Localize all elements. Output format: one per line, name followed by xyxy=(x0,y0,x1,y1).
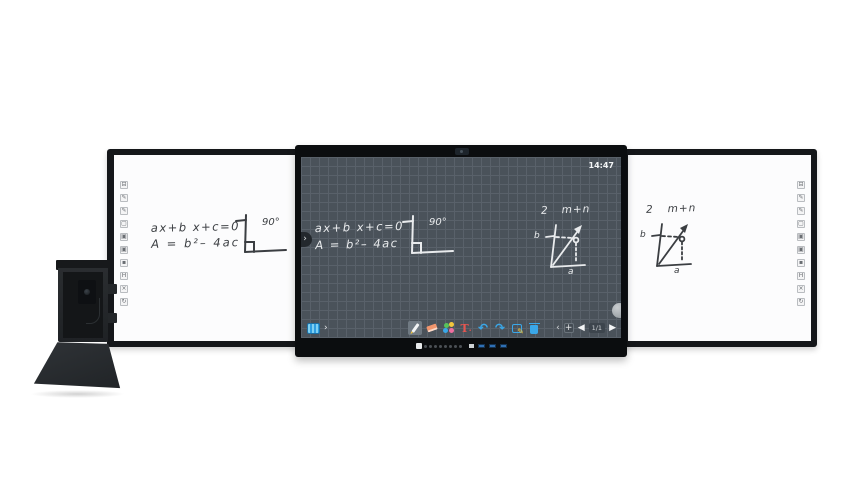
panel-button[interactable] xyxy=(434,345,437,348)
front-io-panel xyxy=(416,342,524,350)
eraser-icon xyxy=(426,323,437,332)
slide-out-panel-handle[interactable]: › xyxy=(301,232,312,247)
panel-button[interactable] xyxy=(444,345,447,348)
select-tool-button[interactable] xyxy=(510,321,524,335)
right-wing-figure-title: 2m+n xyxy=(646,202,697,216)
pen-thick-icon[interactable]: ✎ xyxy=(797,207,805,215)
pen-thick-icon[interactable]: ✎ xyxy=(120,207,128,215)
collapse-chevron-icon[interactable]: ‹ xyxy=(556,322,560,334)
equation-line-1: ax+b x+c=0 xyxy=(151,218,240,236)
tray-shadow xyxy=(30,390,125,398)
cabinet-opening xyxy=(63,272,103,338)
screen-handwriting: ax+b x+c=0 A = b²– 4ac xyxy=(315,218,405,254)
annotation-toolbar: T. ↶ ↷ xyxy=(408,321,541,335)
next-page-button[interactable]: ▶ xyxy=(609,322,616,334)
home-key-icon[interactable]: H xyxy=(120,272,128,280)
panel-button[interactable] xyxy=(424,345,427,348)
undo-button[interactable]: ↶ xyxy=(476,321,490,335)
pen-thin-icon[interactable]: ✎ xyxy=(120,194,128,202)
figure-number: 2 xyxy=(646,204,654,216)
eraser-tool-button[interactable] xyxy=(425,321,439,335)
home-key-icon[interactable]: H xyxy=(797,272,805,280)
pen-icon xyxy=(411,323,419,333)
usb-port xyxy=(489,344,496,348)
close-key-icon[interactable]: × xyxy=(120,285,128,293)
camera-lens-icon xyxy=(460,150,463,153)
pen-tool-button[interactable] xyxy=(408,321,422,335)
redo-button[interactable]: ↷ xyxy=(493,321,507,335)
eraser-dot-icon[interactable]: ▪ xyxy=(797,259,805,267)
toolbar-left-group: › xyxy=(307,323,328,334)
board-minimize-icon[interactable]: ⊟ xyxy=(797,181,805,189)
trash-icon xyxy=(530,325,538,334)
add-page-button[interactable]: + xyxy=(564,323,574,333)
usb-port xyxy=(478,344,485,348)
left-wing-handwriting: ax+b x+c=0 A = b²– 4ac xyxy=(151,218,241,252)
axis-label-a: a xyxy=(674,266,680,276)
figure-number: 2 xyxy=(541,205,549,217)
close-key-icon[interactable]: × xyxy=(797,285,805,293)
panel-button[interactable] xyxy=(429,345,432,348)
vector-diagram-sketch xyxy=(645,216,701,274)
refresh-key-icon[interactable]: ↻ xyxy=(120,298,128,306)
page-indicator: 1/1 xyxy=(589,323,605,333)
document-camera-tray xyxy=(28,340,126,396)
page-navigation: ‹ + ◀ 1/1 ▶ xyxy=(556,322,616,334)
angle-90-label: 90° xyxy=(429,217,447,228)
page-blank-icon[interactable]: ▢ xyxy=(797,220,805,228)
whiteboard-app-icon[interactable] xyxy=(307,323,320,334)
eraser-dot-icon[interactable]: ▪ xyxy=(120,259,128,267)
vector-diagram-sketch xyxy=(539,217,595,275)
eraser-small-icon[interactable]: ▣ xyxy=(797,233,805,241)
eraser-medium-icon[interactable]: ▣ xyxy=(797,246,805,254)
eraser-medium-icon[interactable]: ▣ xyxy=(120,246,128,254)
usb-port xyxy=(500,344,507,348)
front-camera xyxy=(455,148,469,155)
document-camera-cabinet xyxy=(58,268,108,342)
text-tool-icon: T xyxy=(461,322,469,335)
panel-button[interactable] xyxy=(439,345,442,348)
axis-label-b: b xyxy=(640,230,646,240)
right-shortcut-key-strip: ⊟ ✎ ✎ ▢ ▣ ▣ ▪ H × ↻ xyxy=(797,181,805,306)
angle-90-label: 90° xyxy=(262,217,280,228)
brand-logo xyxy=(416,343,422,349)
panel-button[interactable] xyxy=(459,345,462,348)
panel-button[interactable] xyxy=(454,345,457,348)
left-shortcut-key-strip: ⊟ ✎ ✎ ▢ ▣ ▣ ▪ H × ↻ xyxy=(120,181,128,306)
eraser-small-icon[interactable]: ▣ xyxy=(120,233,128,241)
expand-chevron-icon[interactable]: › xyxy=(324,323,328,334)
palette-icon xyxy=(443,322,455,334)
text-tool-button[interactable]: T. xyxy=(459,321,473,335)
camera-cable xyxy=(86,298,100,324)
equation-line-2: A = b²– 4ac xyxy=(315,235,405,254)
equation-line-2: A = b²– 4ac xyxy=(151,234,240,252)
panel-button[interactable] xyxy=(449,345,452,348)
product-photo-smart-blackboard: ⊟ ✎ ✎ ▢ ▣ ▣ ▪ H × ↻ ⊟ ✎ ✎ ▢ ▣ ▣ ▪ H × ↻ … xyxy=(0,0,860,500)
assistive-touch-ball[interactable] xyxy=(612,303,621,318)
axis-label-b: b xyxy=(534,231,540,241)
figure-title: m+n xyxy=(561,203,590,216)
axis-label-a: a xyxy=(568,267,574,277)
refresh-key-icon[interactable]: ↻ xyxy=(797,298,805,306)
pen-thin-icon[interactable]: ✎ xyxy=(797,194,805,202)
port-label xyxy=(469,344,474,348)
color-palette-button[interactable] xyxy=(442,321,456,335)
figure-title: m+n xyxy=(667,202,696,215)
delete-button[interactable] xyxy=(527,321,541,335)
screen-figure-title: 2m+n xyxy=(541,203,591,217)
board-minimize-icon[interactable]: ⊟ xyxy=(120,181,128,189)
select-icon xyxy=(512,324,522,333)
camera-lens-icon xyxy=(84,289,90,295)
interactive-screen[interactable]: 14:47 ax+b x+c=0 A = b²– 4ac 90° 2m+n xyxy=(301,157,621,338)
page-blank-icon[interactable]: ▢ xyxy=(120,220,128,228)
clock: 14:47 xyxy=(589,161,614,170)
previous-page-button[interactable]: ◀ xyxy=(578,322,585,334)
